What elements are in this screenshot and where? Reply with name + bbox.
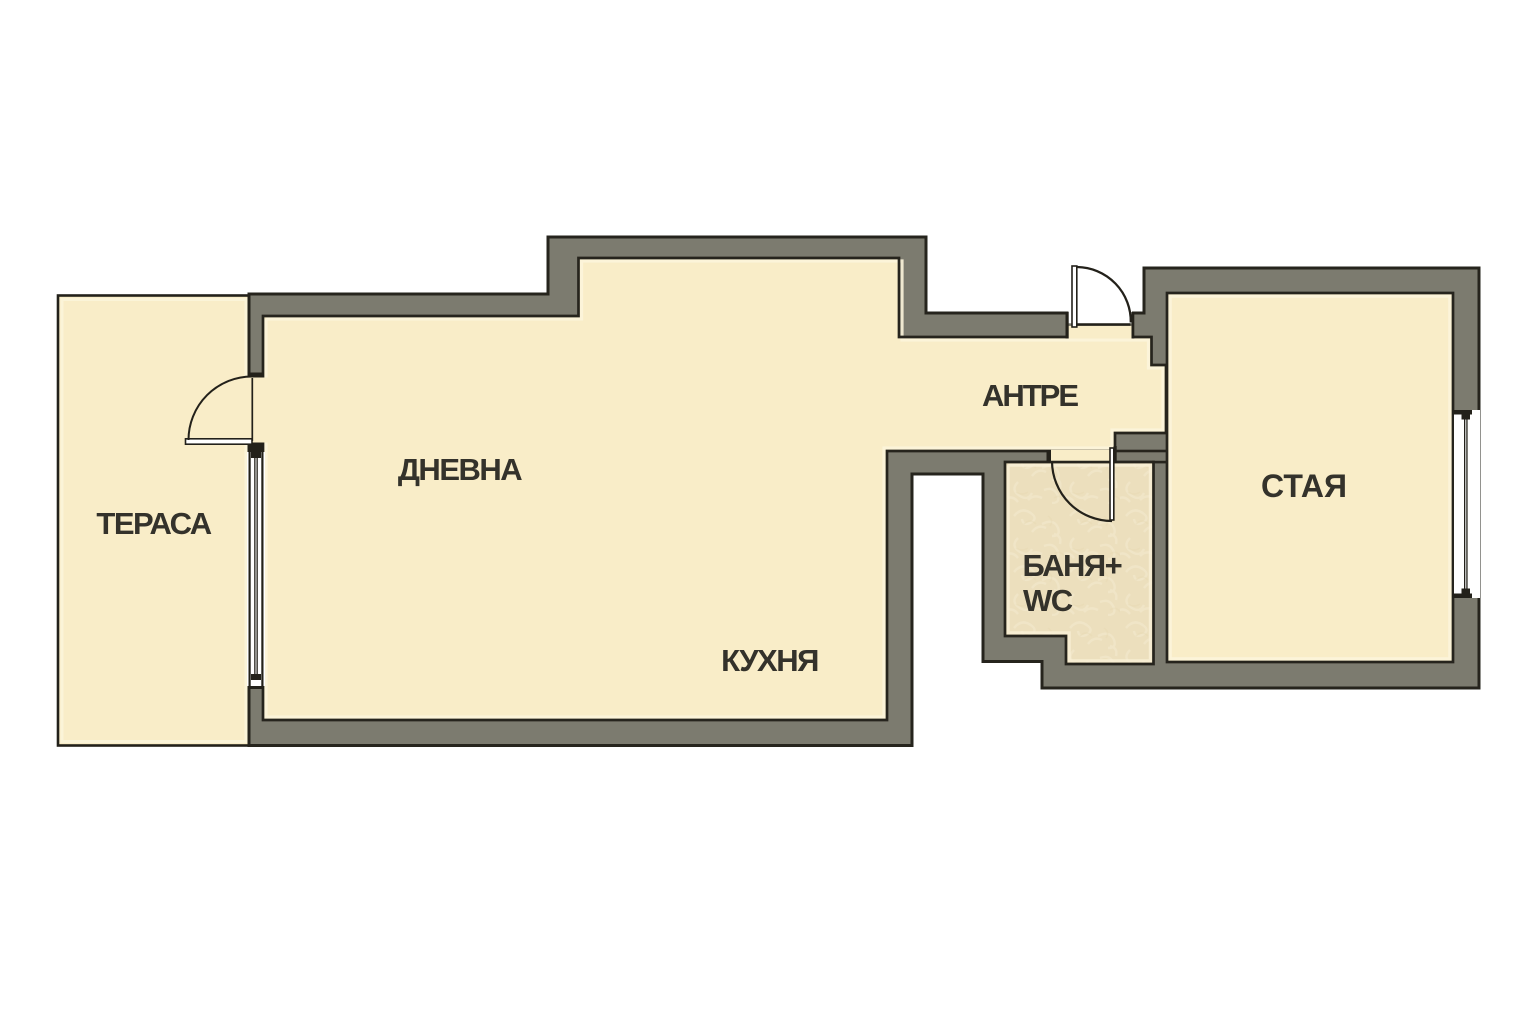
svg-text:КУХНЯ: КУХНЯ [721,643,818,678]
svg-text:WC: WC [1023,583,1073,618]
svg-text:ДНЕВНА: ДНЕВНА [398,452,522,487]
svg-text:СТАЯ: СТАЯ [1261,468,1347,504]
svg-text:ТЕРАСА: ТЕРАСА [96,506,211,541]
svg-text:АНТРЕ: АНТРЕ [982,378,1078,413]
svg-text:БАНЯ+: БАНЯ+ [1023,548,1122,583]
